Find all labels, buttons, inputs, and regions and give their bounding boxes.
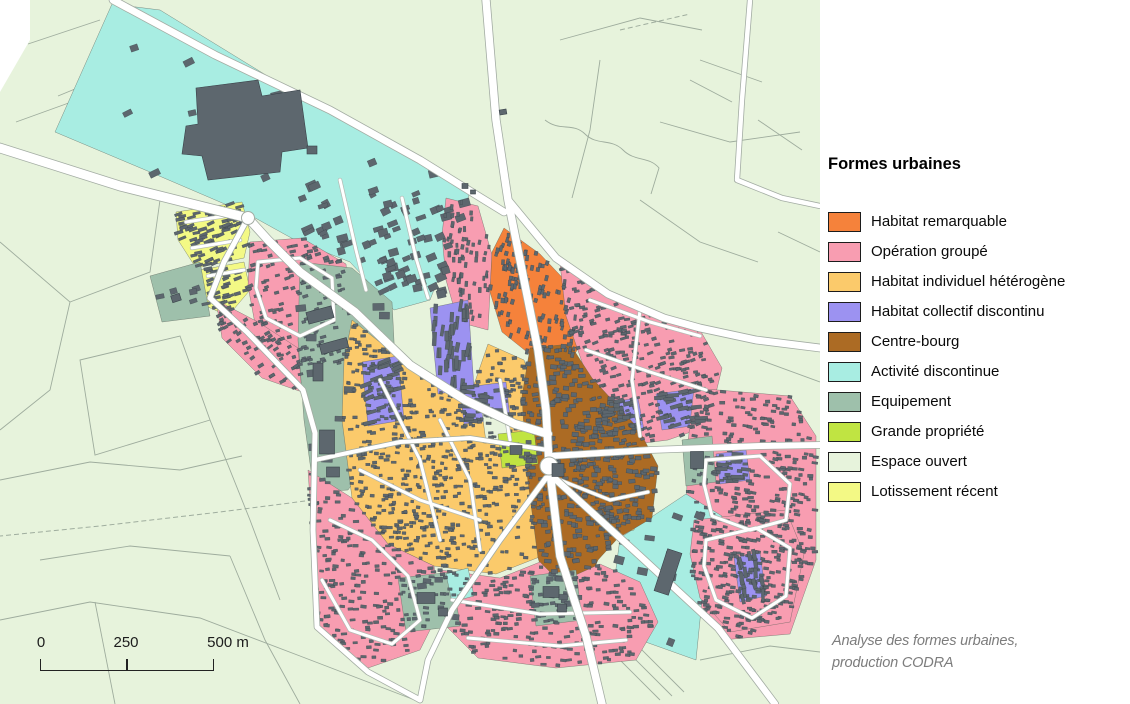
legend-swatch — [828, 452, 861, 472]
scale-bar-midtick — [126, 659, 128, 670]
legend-item-centre: Centre-bourg — [828, 331, 1065, 352]
legend-item-activite: Activité discontinue — [828, 361, 1065, 382]
scale-bar: 0 250 500 m — [36, 634, 266, 676]
legend-title: Formes urbaines — [828, 155, 961, 174]
legend-label: Habitat individuel hétérogène — [871, 273, 1065, 290]
legend-swatch — [828, 212, 861, 232]
legend-item-ouvert: Espace ouvert — [828, 451, 1065, 472]
screenshot: 0 250 500 m Formes urbaines Habitat rema… — [0, 0, 1130, 704]
legend-item-remarquable: Habitat remarquable — [828, 211, 1065, 232]
legend-label: Centre-bourg — [871, 333, 959, 350]
legend-label: Habitat collectif discontinu — [871, 303, 1044, 320]
legend-swatch — [828, 302, 861, 322]
map-canvas — [0, 0, 820, 704]
legend-items: Habitat remarquableOpération groupéHabit… — [828, 211, 1065, 502]
legend-label: Equipement — [871, 393, 951, 410]
legend-swatch — [828, 422, 861, 442]
legend-item-groupe: Opération groupé — [828, 241, 1065, 262]
legend-swatch — [828, 242, 861, 262]
roundabout-west — [242, 212, 255, 225]
legend-swatch — [828, 482, 861, 502]
attribution-line1: Analyse des formes urbaines, — [832, 630, 1018, 652]
legend-swatch — [828, 392, 861, 412]
scale-label-250: 250 — [113, 634, 138, 651]
legend-swatch — [828, 272, 861, 292]
legend-swatch — [828, 332, 861, 352]
legend-swatch — [828, 362, 861, 382]
attribution-line2: production CODRA — [832, 652, 1018, 674]
scale-label-500m: 500 m — [207, 634, 249, 651]
legend-item-lotissement: Lotissement récent — [828, 481, 1065, 502]
legend-panel: Formes urbaines Habitat remarquableOpéra… — [820, 0, 1130, 704]
legend-label: Lotissement récent — [871, 483, 998, 500]
legend-label: Opération groupé — [871, 243, 988, 260]
legend-item-collectif: Habitat collectif discontinu — [828, 301, 1065, 322]
legend-label: Habitat remarquable — [871, 213, 1007, 230]
legend-label: Grande propriété — [871, 423, 984, 440]
legend-item-grande: Grande propriété — [828, 421, 1065, 442]
legend-label: Espace ouvert — [871, 453, 967, 470]
attribution: Analyse des formes urbaines, production … — [832, 630, 1018, 674]
legend-item-individuel: Habitat individuel hétérogène — [828, 271, 1065, 292]
scale-label-0: 0 — [37, 634, 45, 651]
legend-label: Activité discontinue — [871, 363, 999, 380]
legend-item-equipement: Equipement — [828, 391, 1065, 412]
